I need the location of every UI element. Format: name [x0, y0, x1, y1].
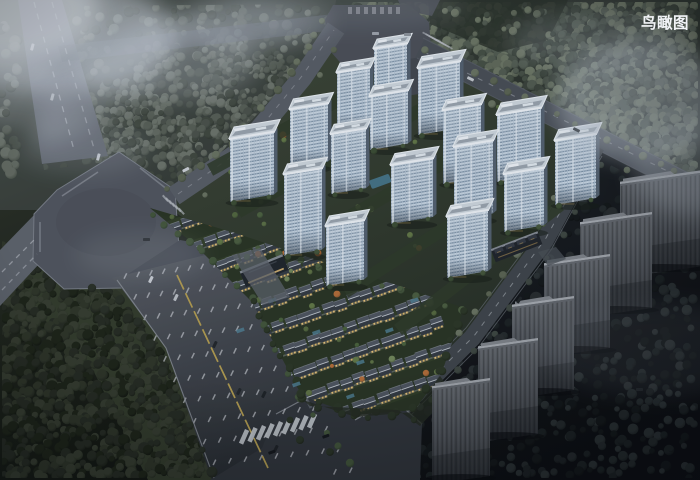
svg-text:鸟瞰图: 鸟瞰图: [641, 13, 689, 32]
